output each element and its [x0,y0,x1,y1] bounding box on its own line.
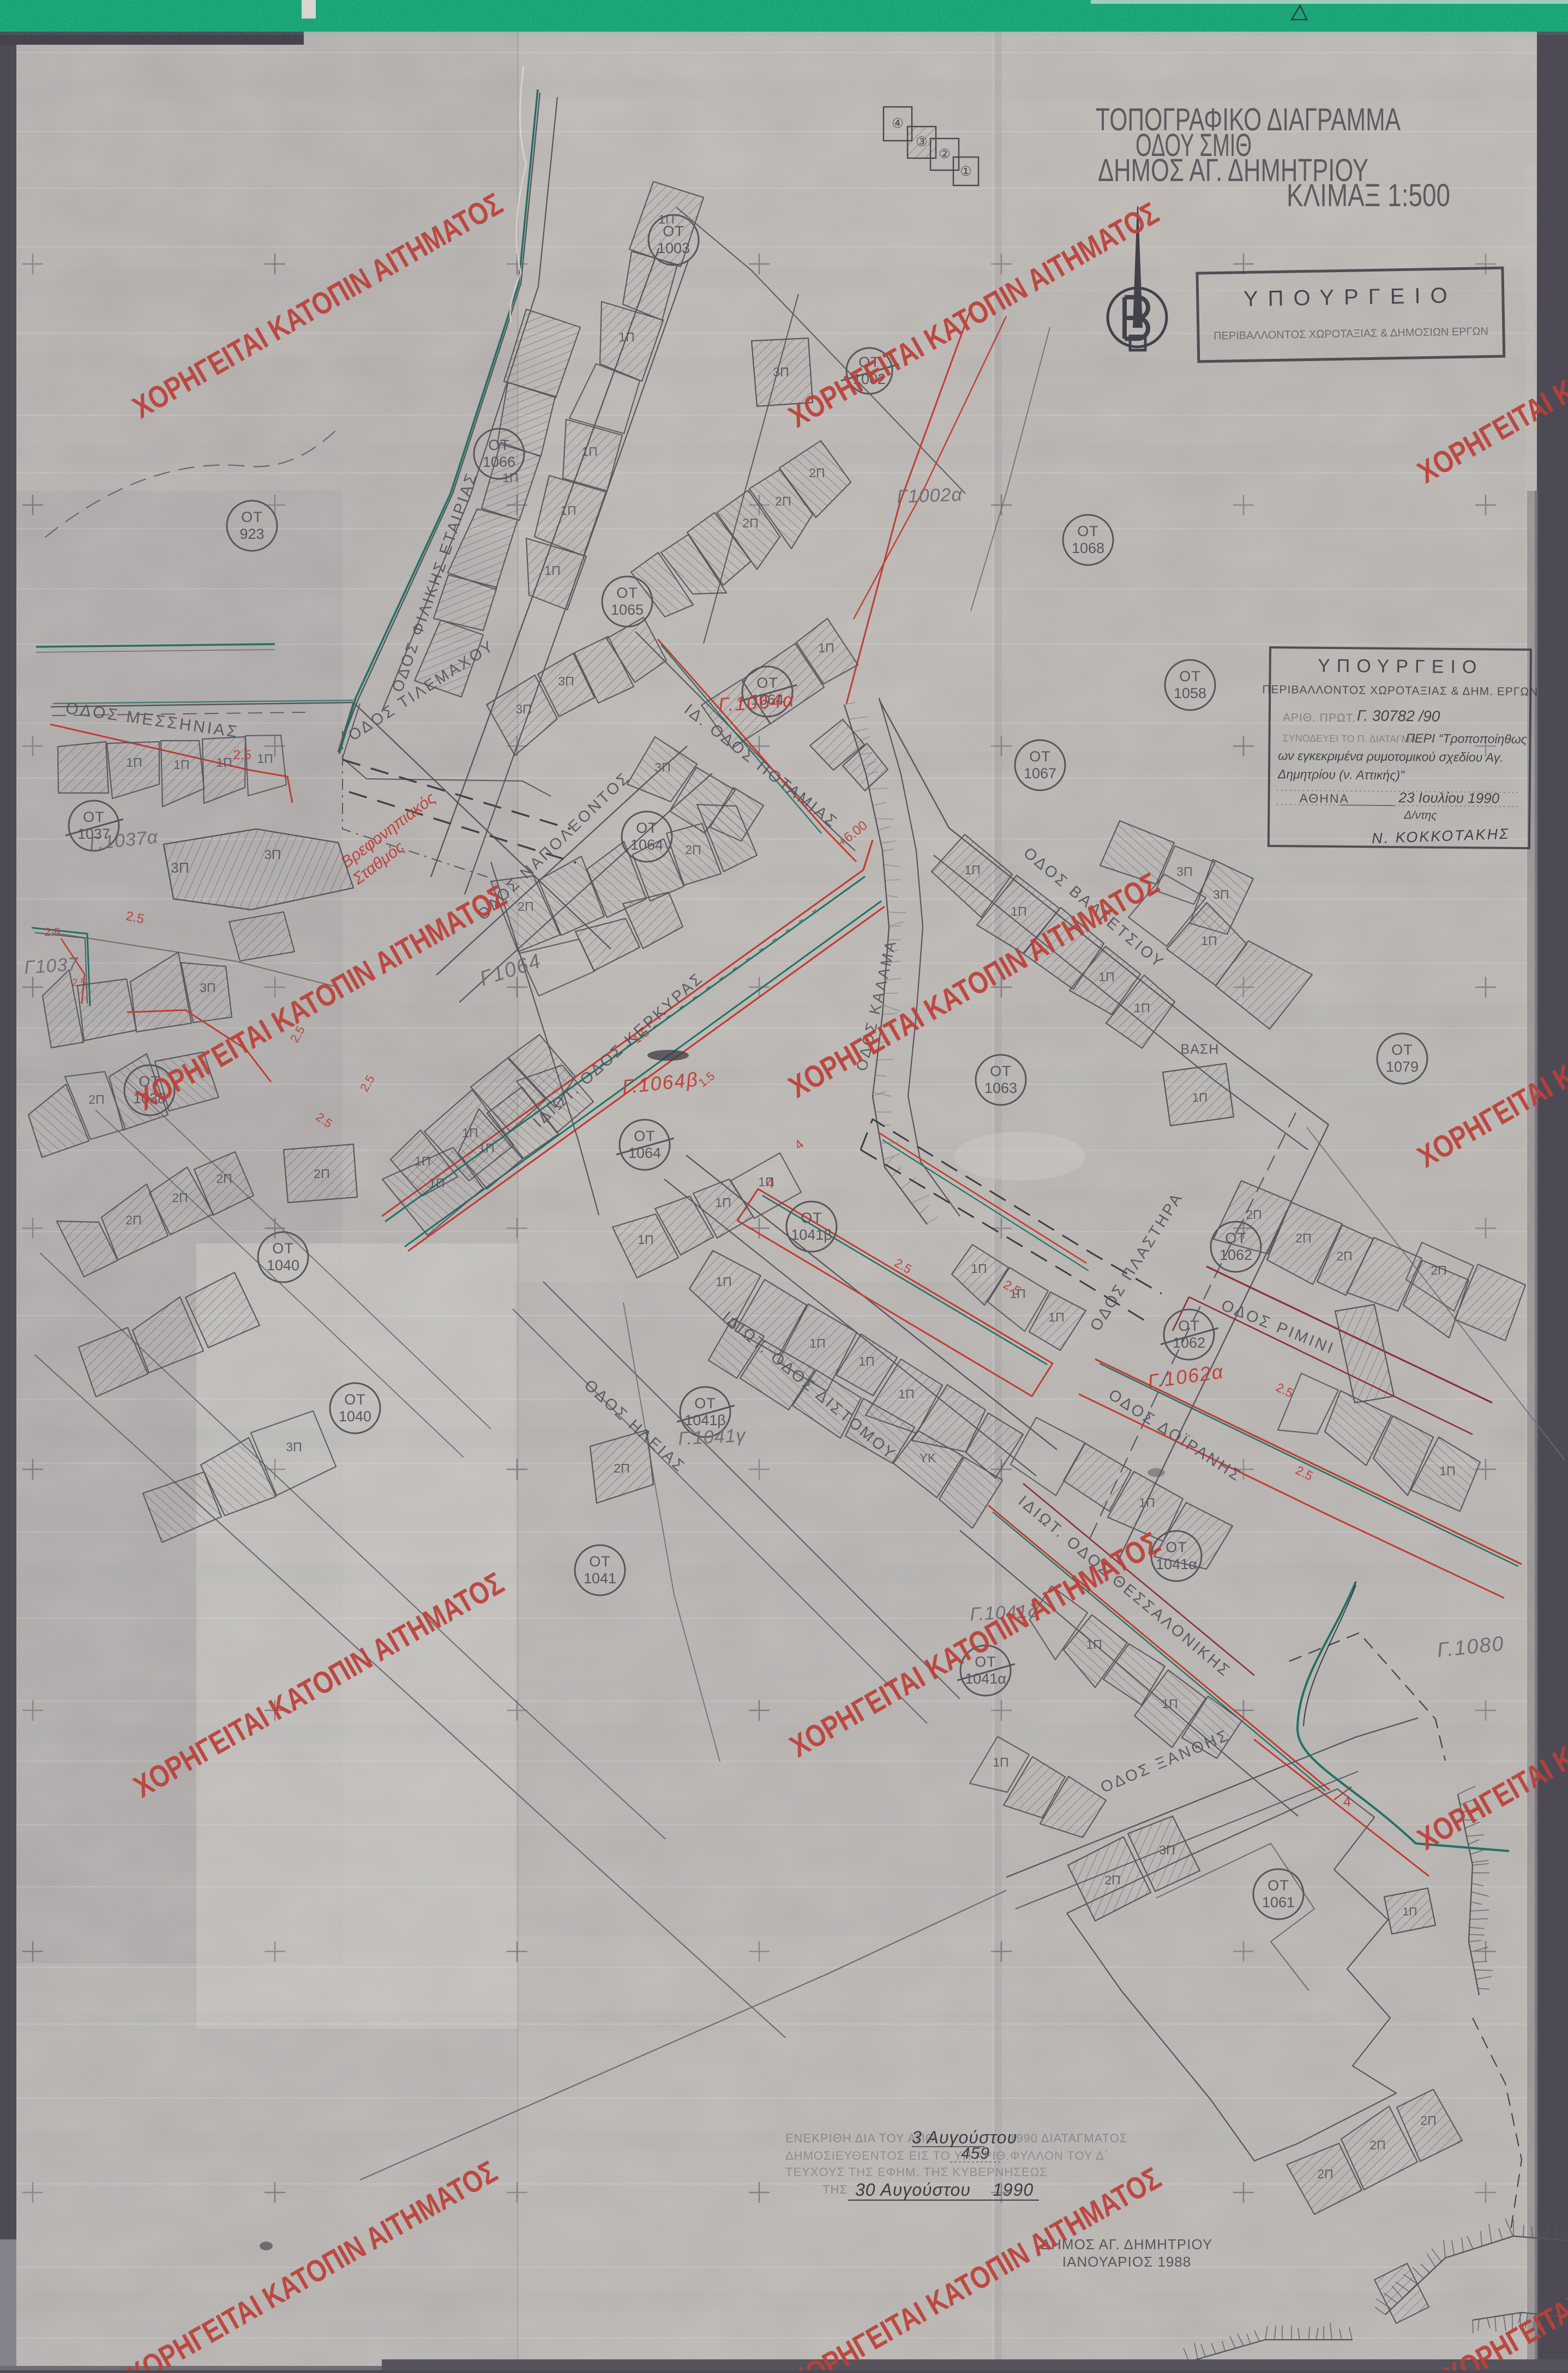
svg-text:2Π: 2Π [1104,1873,1120,1887]
svg-text:Δημητρίου (ν. Αττικής)”: Δημητρίου (ν. Αττικής)” [1277,767,1405,782]
svg-text:3Π: 3Π [286,1440,302,1454]
svg-text:1Π: 1Π [1011,904,1026,918]
svg-text:1003: 1003 [657,240,690,256]
svg-text:23 Ιουλίου 1990: 23 Ιουλίου 1990 [1398,789,1499,807]
svg-text:1041β: 1041β [791,1227,832,1243]
svg-text:1990 ΔΙΑΤΑΓΜΑΤΟΣ: 1990 ΔΙΑΤΑΓΜΑΤΟΣ [1009,2131,1127,2145]
svg-text:1Π: 1Π [858,1354,874,1368]
svg-text:ΟΤ: ΟΤ [1179,668,1201,684]
svg-text:1Π: 1Π [1086,1637,1102,1651]
svg-text:ΤΗΣ: ΤΗΣ [822,2183,848,2196]
svg-text:ΟΤ: ΟΤ [616,585,638,601]
svg-text:ΟΤ: ΟΤ [488,437,510,453]
svg-text:ΥΚ: ΥΚ [920,1451,936,1465]
svg-text:1065: 1065 [611,602,644,618]
svg-text:2Π: 2Π [742,516,758,530]
svg-text:2Π: 2Π [172,1191,188,1205]
svg-text:1Π: 1Π [618,330,634,344]
svg-text:①: ① [960,164,972,179]
svg-text:2Π: 2Π [775,494,791,508]
svg-text:3Π: 3Π [515,702,531,716]
svg-text:1Π: 1Π [1139,1495,1155,1510]
svg-text:2Π: 2Π [88,1092,104,1107]
svg-text:ΟΤ: ΟΤ [241,509,263,525]
svg-text:1Π: 1Π [818,641,834,655]
svg-text:1061: 1061 [1262,1894,1295,1911]
svg-text:1Π: 1Π [638,1233,653,1247]
svg-text:ΟΤ: ΟΤ [1267,1877,1289,1894]
svg-text:1Π: 1Π [478,1141,494,1155]
svg-text:2Π: 2Π [1336,1249,1352,1263]
svg-text:1Π: 1Π [1162,1697,1177,1711]
svg-text:1Π: 1Π [1403,1906,1417,1918]
svg-text:1068: 1068 [1072,540,1104,556]
svg-text:1Π: 1Π [560,503,576,518]
svg-text:1Π: 1Π [1134,1001,1150,1015]
svg-text:ΤΕΥΧΟΥΣ ΤΗΣ ΕΦΗΜ. ΤΗΣ ΚΥΒΕΡΝΗΣ: ΤΕΥΧΟΥΣ ΤΗΣ ΕΦΗΜ. ΤΗΣ ΚΥΒΕΡΝΗΣΕΩΣ [785,2165,1048,2179]
svg-text:1Π: 1Π [716,1275,731,1289]
svg-text:3Π: 3Π [558,674,574,688]
svg-text:2Π: 2Π [1317,2167,1333,2181]
svg-text:ΙΑΝΟΥΑΡΙΟΣ 1988: ΙΑΝΟΥΑΡΙΟΣ 1988 [1062,2254,1191,2270]
svg-text:1Π: 1Π [1201,934,1217,948]
svg-text:Γ1037: Γ1037 [23,954,80,978]
svg-text:ΒΑΣΗ: ΒΑΣΗ [1181,1042,1219,1057]
svg-text:ΟΤ: ΟΤ [1225,1230,1247,1246]
svg-text:ΠΕΡΙ “Τροποποίηθως: ΠΕΡΙ “Τροποποίηθως [1405,731,1527,746]
svg-text:ΟΤ: ΟΤ [756,675,778,691]
svg-text:1Π: 1Π [1439,1464,1455,1478]
svg-text:ΦΥΛΛΟΝ ΤΟΥ Δ΄: ΦΥΛΛΟΝ ΤΟΥ Δ΄ [1010,2149,1109,2162]
svg-text:ΟΤ: ΟΤ [801,1210,822,1226]
svg-text:3Π: 3Π [654,760,670,774]
svg-text:1063: 1063 [984,1080,1017,1096]
svg-text:1Π: 1Π [581,444,597,459]
svg-text:1041: 1041 [584,1570,616,1587]
svg-text:3Π: 3Π [200,981,215,995]
svg-text:1Π: 1Π [126,755,142,770]
svg-text:3Π: 3Π [773,365,789,379]
svg-text:Γ1002α: Γ1002α [897,484,963,507]
svg-text:ΟΤ: ΟΤ [272,1240,294,1257]
svg-text:1067: 1067 [1024,765,1056,782]
svg-text:3Π: 3Π [1159,1843,1175,1857]
svg-text:1Π: 1Π [216,755,232,770]
svg-text:2Π: 2Π [809,466,825,480]
svg-text:2.5: 2.5 [44,926,60,939]
svg-text:ΟΤ: ΟΤ [589,1553,611,1570]
svg-text:1040: 1040 [339,1408,371,1425]
svg-text:2Π: 2Π [125,1213,141,1227]
svg-text:2Π: 2Π [614,1461,629,1475]
svg-text:2Π: 2Π [1420,2113,1436,2128]
svg-text:Δ/ντης: Δ/ντης [1403,809,1437,822]
svg-text:459: 459 [961,2144,990,2162]
svg-text:2Π: 2Π [518,899,533,914]
svg-text:ΥΠΟΥΡΓΕΙΟ: ΥΠΟΥΡΓΕΙΟ [1318,656,1483,678]
svg-text:ΟΤ: ΟΤ [634,1128,656,1144]
svg-text:923: 923 [239,526,264,542]
svg-text:ΟΤ: ΟΤ [694,1395,716,1411]
svg-text:ΟΤ: ΟΤ [663,223,684,239]
svg-text:1Π: 1Π [715,1195,731,1210]
svg-text:1040: 1040 [267,1257,299,1273]
svg-text:1Π: 1Π [1010,1287,1025,1301]
svg-text:3Π: 3Π [1176,864,1192,879]
svg-text:3Π: 3Π [265,848,281,862]
svg-text:1Π: 1Π [544,563,560,578]
svg-text:ΟΤ: ΟΤ [83,809,105,825]
svg-text:ΟΤ: ΟΤ [344,1391,366,1408]
svg-text:ΟΤ: ΟΤ [1391,1042,1413,1058]
svg-text:1Π: 1Π [1048,1310,1064,1324]
svg-text:1Π: 1Π [173,758,189,772]
svg-text:ΚΛΙΜΑΞ 1:500: ΚΛΙΜΑΞ 1:500 [1287,178,1450,213]
svg-text:Γ.1041γ: Γ.1041γ [677,1425,747,1449]
svg-text:ΣΥΝΟΔΕΥΕΙ ΤΟ Π. ΔΙΑΤΑΓΜΑ: ΣΥΝΟΔΕΥΕΙ ΤΟ Π. ΔΙΑΤΑΓΜΑ [1282,732,1416,744]
svg-text:1058: 1058 [1174,685,1206,701]
svg-text:ΥΠΟΥΡΓΕΙΟ: ΥΠΟΥΡΓΕΙΟ [1243,284,1457,311]
svg-text:1Π: 1Π [809,1336,825,1350]
svg-text:ΟΤ: ΟΤ [1029,748,1051,765]
svg-text:④: ④ [892,116,904,131]
svg-text:2Π: 2Π [1431,1263,1446,1277]
svg-text:②: ② [939,147,951,161]
svg-text:ΟΤ: ΟΤ [636,820,658,836]
svg-text:1990: 1990 [993,2180,1034,2200]
svg-text:1Π: 1Π [429,1176,444,1190]
svg-text:3Π: 3Π [171,860,189,876]
svg-text:1041α: 1041α [1156,1556,1197,1572]
svg-text:30 Αυγούστου: 30 Αυγούστου [855,2180,971,2200]
svg-text:1Π: 1Π [1098,970,1114,984]
svg-text:1Π: 1Π [898,1387,914,1401]
svg-text:1Π: 1Π [758,1175,774,1189]
svg-text:1Π: 1Π [993,1755,1008,1769]
svg-text:1066: 1066 [483,454,515,470]
svg-text:ΟΤ: ΟΤ [1178,1318,1200,1334]
svg-text:ΑΘΗΝΑ: ΑΘΗΝΑ [1299,791,1349,806]
svg-text:1062: 1062 [1219,1247,1252,1263]
svg-text:ΟΤ: ΟΤ [1077,523,1099,539]
svg-text:1Π: 1Π [964,863,980,877]
svg-text:ΑΡΙΘ. ΠΡΩΤ.: ΑΡΙΘ. ΠΡΩΤ. [1283,711,1356,724]
svg-text:1Π: 1Π [971,1261,987,1276]
svg-text:ΠΕΡΙΒΑΛΛΟΝΤΟΣ ΧΩΡΟΤΑΞΙΑΣ & ΔΗΜ: ΠΕΡΙΒΑΛΛΟΝΤΟΣ ΧΩΡΟΤΑΞΙΑΣ & ΔΗΜ. ΕΡΓΩΝ [1262,683,1538,698]
svg-text:1079: 1079 [1386,1059,1419,1075]
svg-text:ΟΤ: ΟΤ [1166,1539,1187,1555]
svg-text:2Π: 2Π [1246,1207,1261,1222]
svg-text:ΟΤ: ΟΤ [990,1063,1012,1079]
svg-text:2Π: 2Π [1295,1231,1311,1245]
svg-text:1Π: 1Π [1192,1091,1207,1104]
svg-text:Γ. 30782 /90: Γ. 30782 /90 [1357,707,1440,724]
svg-text:2Π: 2Π [314,1167,329,1181]
svg-text:2Π: 2Π [1369,2138,1385,2152]
svg-text:3Π: 3Π [1213,887,1229,902]
svg-text:1064: 1064 [630,837,663,853]
svg-text:2.5: 2.5 [233,748,251,762]
svg-text:1Π: 1Π [257,752,273,766]
svg-text:③: ③ [916,135,928,149]
svg-text:2Π: 2Π [685,843,701,857]
svg-text:ων εγκεκριμένα ρυμοτομικού σχε: ων εγκεκριμένα ρυμοτομικού σχεδίου Αγ. [1278,748,1504,765]
svg-text:2Π: 2Π [216,1172,232,1186]
